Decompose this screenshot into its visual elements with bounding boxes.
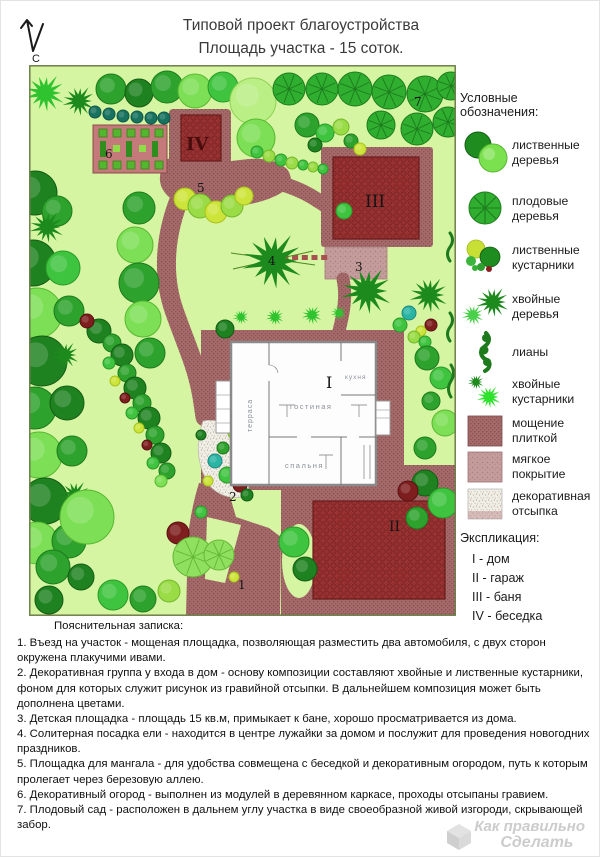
watermark: Как правильно Сделать [444, 819, 585, 852]
label-gazebo: IV [186, 134, 209, 155]
legend-item-fruit-trees: плодовые деревья [460, 183, 599, 235]
legend-item-conifer-trees: хвойные деревья [460, 281, 599, 333]
lianas-icon [460, 330, 512, 374]
watermark-cube-icon [444, 821, 474, 851]
watermark-line1: Как правильно [474, 819, 585, 835]
legend-item-deciduous-shrubs: лиственные кустарники [460, 235, 599, 281]
room-terrace: терраса [247, 399, 254, 432]
explication-title: Экспликация: [460, 531, 599, 545]
legend-label: лиственные кустарники [512, 243, 599, 273]
legend-label: хвойные деревья [512, 292, 599, 322]
legend-label: лианы [512, 345, 548, 360]
label-house: I [326, 373, 332, 392]
deciduous-trees-icon [460, 128, 512, 178]
compass-north-icon: С [13, 11, 55, 65]
site-plan-svg: I II III IV 1 2 3 4 5 6 7 кухня гостиная… [29, 65, 456, 616]
explication-item: III - баня [460, 588, 599, 607]
note-item: 4. Солитерная посадка ели - находится в … [17, 727, 591, 757]
explication-item: I - дом [460, 550, 599, 569]
label-bbq: 5 [197, 181, 205, 195]
label-spruce: 4 [268, 254, 276, 268]
legend: Условные обозначения: лиственные деревья… [460, 91, 599, 626]
conifer-shrubs-icon [460, 371, 512, 413]
conifer-trees-icon [460, 282, 512, 332]
legend-item-decorative-gravel: декоративная отсыпка [460, 485, 599, 523]
legend-label: хвойные кустарники [512, 377, 599, 407]
page-title: Типовой проект благоустройства Площадь у… [1, 14, 600, 61]
label-decor-group: 2 [229, 490, 237, 504]
decorative-gravel-icon [460, 487, 512, 521]
compass-label: С [32, 53, 40, 65]
legend-label: декоративная отсыпка [512, 489, 599, 519]
legend-title: Условные обозначения: [460, 91, 599, 119]
note-item: 3. Детская площадка - площадь 15 кв.м, п… [17, 712, 591, 727]
title-line2: Площадь участка - 15 соток. [1, 37, 600, 60]
tile-paving-icon [460, 415, 512, 447]
room-living: гостиная [290, 402, 333, 411]
note-title: Пояснительная записка: [17, 619, 591, 634]
site-plan: I II III IV 1 2 3 4 5 6 7 кухня гостиная… [29, 65, 456, 616]
legend-label: лиственные деревья [512, 138, 599, 168]
explication: Экспликация: I - дом II - гараж III - ба… [460, 531, 599, 626]
label-entrance: 1 [238, 578, 246, 592]
note-item: 1. Въезд на участок - мощеная площадка, … [17, 636, 591, 666]
label-playground: 3 [355, 260, 363, 274]
legend-item-deciduous-trees: лиственные деревья [460, 123, 599, 183]
fruit-trees-icon [460, 186, 512, 232]
room-bedroom: спальня [285, 461, 324, 470]
legend-label: мягкое покрытие [512, 452, 599, 482]
explication-item: II - гараж [460, 569, 599, 588]
label-bath: III [365, 192, 385, 212]
page: Типовой проект благоустройства Площадь у… [0, 0, 600, 857]
label-garage: II [389, 519, 400, 535]
legend-item-tile-paving: мощение плиткой [460, 413, 599, 449]
legend-item-conifer-shrubs: хвойные кустарники [460, 371, 599, 413]
label-garden: 6 [105, 147, 113, 161]
house-porch-left [216, 381, 231, 433]
legend-label: мощение плиткой [512, 416, 599, 446]
deciduous-shrubs-icon [460, 236, 512, 280]
note-item: 6. Декоративный огород - выполнен из мод… [17, 788, 591, 803]
note-item: 2. Декоративная группа у входа в дом - о… [17, 666, 591, 711]
legend-item-lianas: лианы [460, 333, 599, 371]
explanatory-note: Пояснительная записка: 1. Въезд на участ… [17, 619, 591, 833]
legend-label: плодовые деревья [512, 194, 599, 224]
label-orchard: 7 [414, 95, 422, 109]
note-item: 5. Площадка для мангала - для удобства с… [17, 757, 591, 787]
title-line1: Типовой проект благоустройства [1, 14, 600, 37]
legend-item-soft-surface: мягкое покрытие [460, 449, 599, 485]
room-kitchen: кухня [345, 374, 367, 381]
soft-surface-icon [460, 451, 512, 483]
watermark-line2: Сделать [500, 835, 585, 852]
